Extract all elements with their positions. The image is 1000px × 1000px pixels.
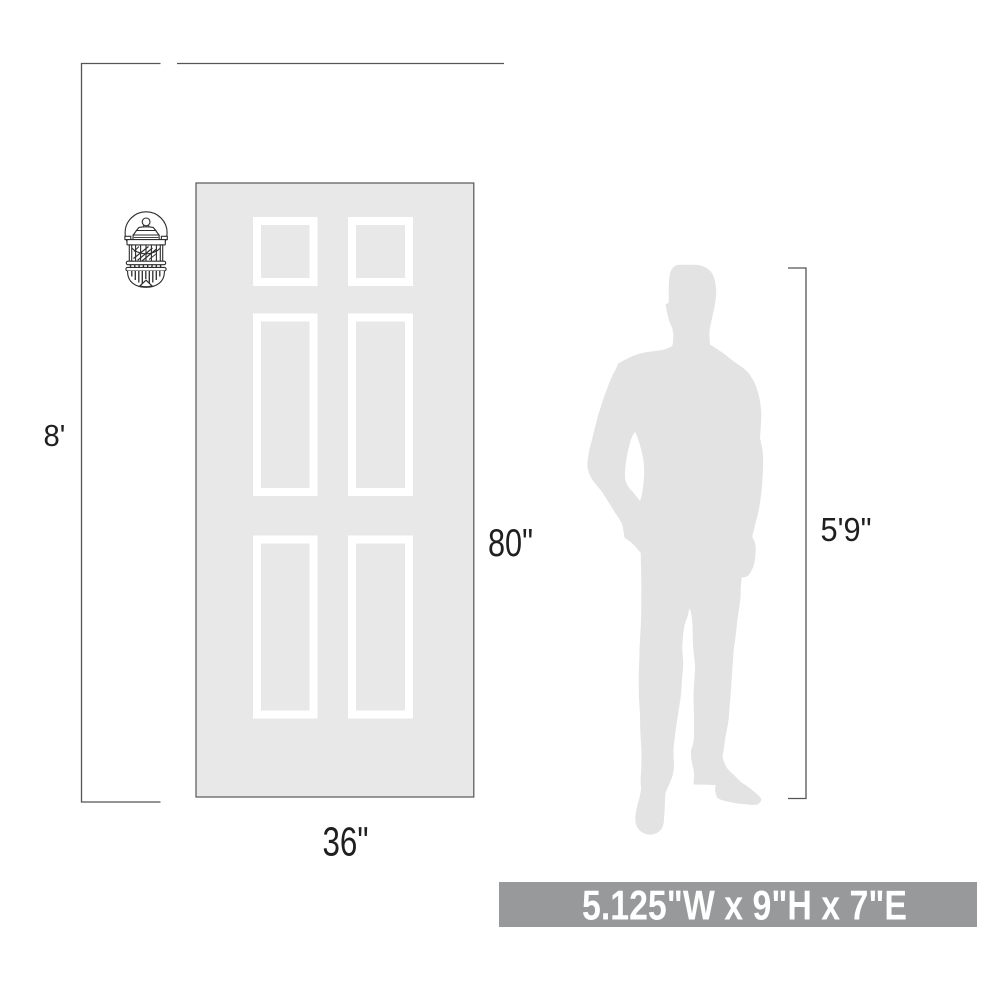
svg-text:8': 8' [44, 418, 66, 453]
svg-text:5.125"W x 9"H x 7"E: 5.125"W x 9"H x 7"E [582, 882, 907, 929]
svg-text:36": 36" [323, 819, 369, 865]
svg-text:80": 80" [488, 522, 533, 565]
svg-text:5'9": 5'9" [821, 511, 872, 548]
